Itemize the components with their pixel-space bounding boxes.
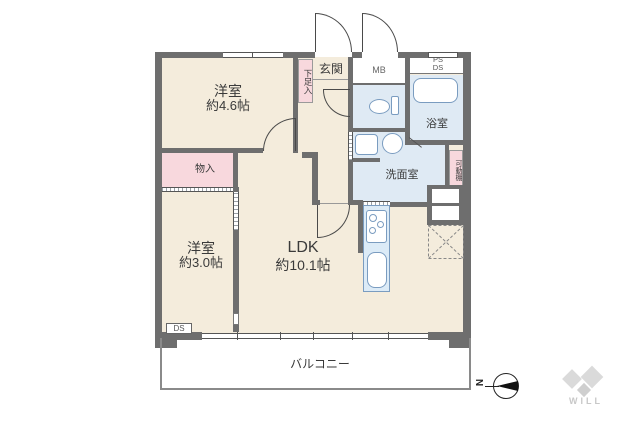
wall-segment <box>233 325 239 332</box>
wall-segment <box>463 52 471 340</box>
wall-segment <box>390 202 427 207</box>
storage-label: 物入 <box>183 164 227 176</box>
entrance-label: 玄関 <box>311 63 351 77</box>
north-arrow-triangle <box>497 381 518 391</box>
bathtub <box>413 78 458 103</box>
bedroom2-sliding-door <box>233 192 239 230</box>
bathroom-label: 浴室 <box>413 118 461 131</box>
stove-burner <box>377 221 384 228</box>
floorplan: DS バルコニー 洋室 約4.6帖 洋室 約3.0帖 LDK 約10.1帖 玄関… <box>0 0 640 427</box>
will-logo: WILL <box>558 365 616 410</box>
stove-burner <box>369 227 376 234</box>
meter-box-label: MB <box>353 65 405 75</box>
wall-segment <box>352 52 362 58</box>
entrance-door-arc <box>315 13 352 52</box>
wall-segment <box>312 152 318 205</box>
wash-basin <box>382 133 403 154</box>
ldk-label: LDK 約10.1帖 <box>258 239 348 273</box>
shelf-box <box>432 189 459 203</box>
storage-sliding-door <box>162 187 233 192</box>
movable-shelf-label: 可動棚 <box>450 153 462 187</box>
balcony-label: バルコニー <box>270 358 370 372</box>
bedroom2-label: 洋室 約3.0帖 <box>161 240 241 271</box>
wall-segment <box>283 52 315 58</box>
wall-segment <box>348 128 405 132</box>
toilet-bowl <box>369 99 390 114</box>
wall-segment <box>348 83 405 85</box>
ldk-size: 約10.1帖 <box>258 257 348 273</box>
toilet-tank <box>391 96 399 115</box>
wall-segment <box>162 148 263 153</box>
duct-space-top-label: DS <box>424 64 452 72</box>
bedroom1-label: 洋室 約4.6帖 <box>178 83 278 114</box>
bedroom2-name: 洋室 <box>161 240 241 256</box>
stove-burner <box>369 214 377 222</box>
window <box>223 52 283 58</box>
bedroom2-size: 約3.0帖 <box>161 256 241 271</box>
wall-segment <box>353 158 380 162</box>
washroom-folding-door <box>348 130 353 160</box>
washroom-label: 洗面室 <box>372 169 432 182</box>
wall-segment <box>155 52 162 340</box>
mb-door-arc <box>362 13 398 52</box>
logo-text: WILL <box>560 396 612 406</box>
ldk-name: LDK <box>258 239 348 257</box>
refrigerator-space <box>428 225 464 259</box>
bedroom1-size: 約4.6帖 <box>178 99 278 114</box>
ps-ds-label: PS DS <box>424 56 452 72</box>
bedroom1-name: 洋室 <box>178 83 278 99</box>
logo-diamond <box>562 369 582 389</box>
compass: N <box>477 370 527 402</box>
duct-space-bottom-label: DS <box>166 324 192 333</box>
wall-notch <box>233 313 239 325</box>
wall-segment <box>155 52 223 58</box>
sink <box>367 252 387 288</box>
wall-segment <box>405 57 410 145</box>
threshold-line <box>320 203 350 204</box>
washing-machine-pan <box>355 134 378 155</box>
shelf-box <box>432 206 459 220</box>
ps-divider-line <box>410 73 463 74</box>
window-mullion <box>252 52 253 58</box>
shoe-cabinet-label: 下足入 <box>299 62 312 102</box>
entrance-step-line <box>313 79 348 80</box>
